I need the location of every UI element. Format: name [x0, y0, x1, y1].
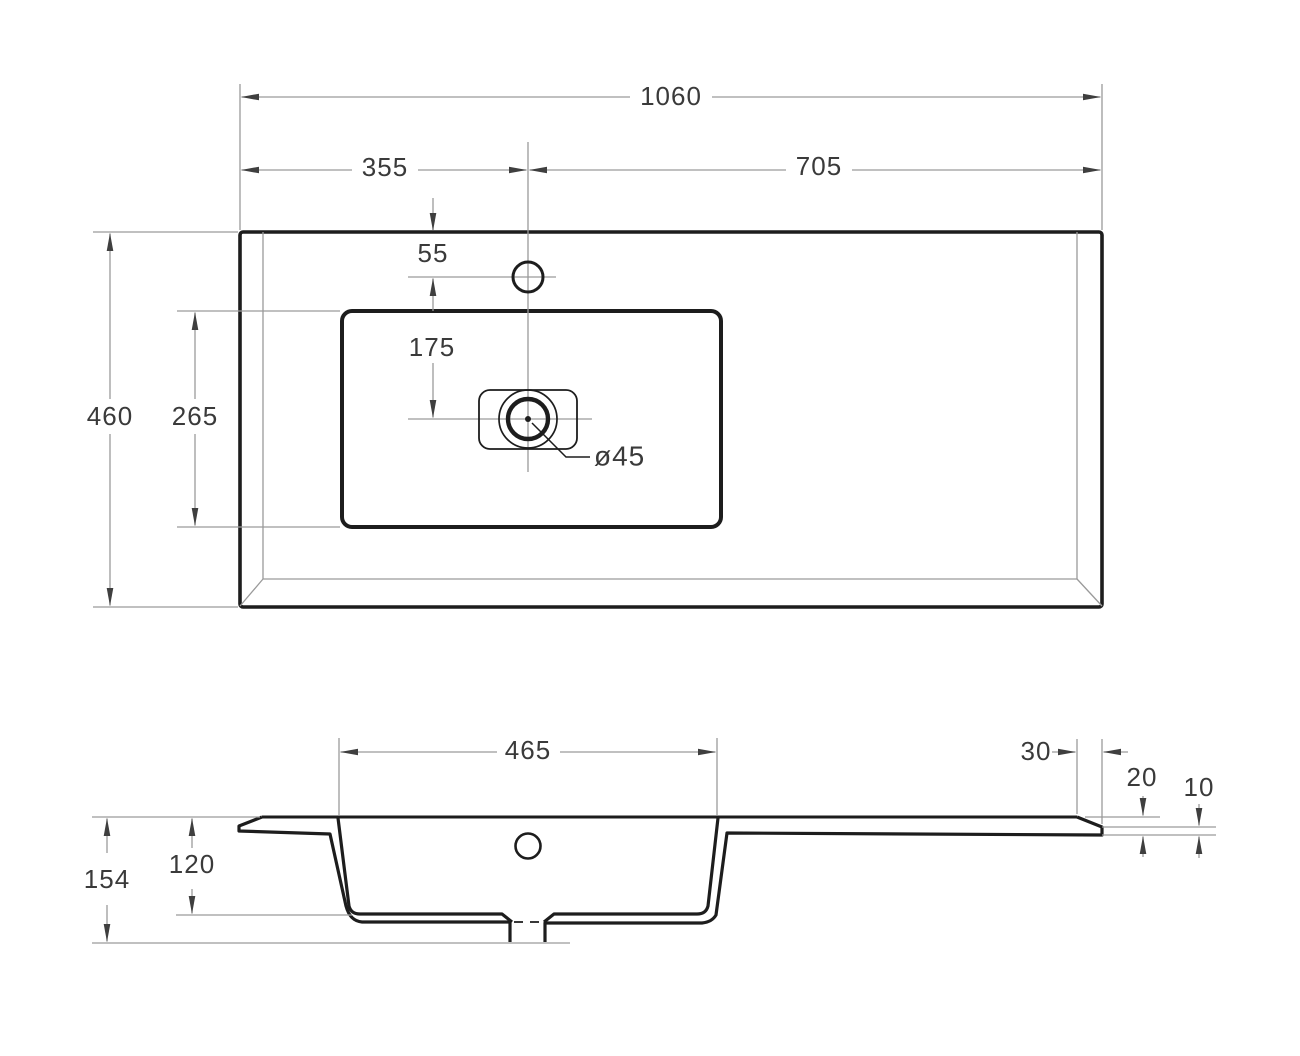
- dim-label-faucet-to-drain: 175: [409, 332, 455, 362]
- bevel-corner-right: [1077, 579, 1102, 606]
- dim-lip-thickness: 10: [1184, 772, 1215, 858]
- basin-inner-wall-left: [338, 818, 512, 922]
- dim-label-edge-thickness: 20: [1127, 762, 1158, 792]
- dim-label-lip-thickness: 10: [1184, 772, 1215, 802]
- edge-bevel-lines: [240, 232, 1102, 606]
- dim-label-edge-chamfer: 30: [1021, 736, 1052, 766]
- top-view-plan: 1060 355 705 55 175 265: [87, 81, 1102, 607]
- basin-inner-wall-right: [544, 818, 718, 922]
- dim-label-basin-width: 465: [505, 735, 551, 765]
- dim-label-top-edge-to-faucet: 55: [418, 238, 449, 268]
- dim-top-edge-to-faucet: 55: [418, 198, 449, 311]
- technical-drawing-page: 1060 355 705 55 175 265: [0, 0, 1300, 1056]
- section-extension-lines: [92, 738, 1216, 943]
- section-left-profile: [239, 817, 510, 942]
- front-section-view: 465 30 20 10 120 154: [84, 735, 1216, 943]
- dim-faucet-to-drain: 175: [409, 332, 455, 418]
- dim-edge-thickness: 20: [1127, 762, 1158, 857]
- dim-label-overall-width: 1060: [640, 81, 702, 111]
- overflow-hole: [516, 834, 541, 859]
- dim-basin-inner-depth: 120: [169, 819, 215, 914]
- washbasin-dimensional-drawing: 1060 355 705 55 175 265: [0, 0, 1300, 1056]
- drain-assembly: [479, 390, 590, 457]
- dim-label-basin-depth: 265: [172, 401, 218, 431]
- drain-center-point: [525, 416, 531, 422]
- section-right-profile: [545, 817, 1102, 942]
- dim-label-faucet-offset-left: 355: [362, 152, 408, 182]
- dim-overall-depth: 460: [87, 234, 133, 606]
- dim-faucet-offsets: 355 705: [242, 151, 1101, 182]
- dim-label-overall-height: 154: [84, 864, 130, 894]
- dim-label-faucet-offset-right: 705: [796, 151, 842, 181]
- dim-basin-width: 465: [341, 735, 716, 765]
- dim-edge-chamfer: 30: [1021, 736, 1128, 766]
- dim-label-basin-inner-depth: 120: [169, 849, 215, 879]
- dim-overall-width: 1060: [242, 81, 1101, 111]
- countertop-outline: [240, 232, 1102, 607]
- bevel-corner-left: [240, 579, 263, 606]
- dim-overall-height: 154: [84, 819, 130, 942]
- dim-label-drain-diameter: ø45: [594, 441, 645, 472]
- dim-basin-depth: 265: [172, 313, 218, 526]
- dim-label-overall-depth: 460: [87, 401, 133, 431]
- drain-leader-line: [532, 423, 590, 457]
